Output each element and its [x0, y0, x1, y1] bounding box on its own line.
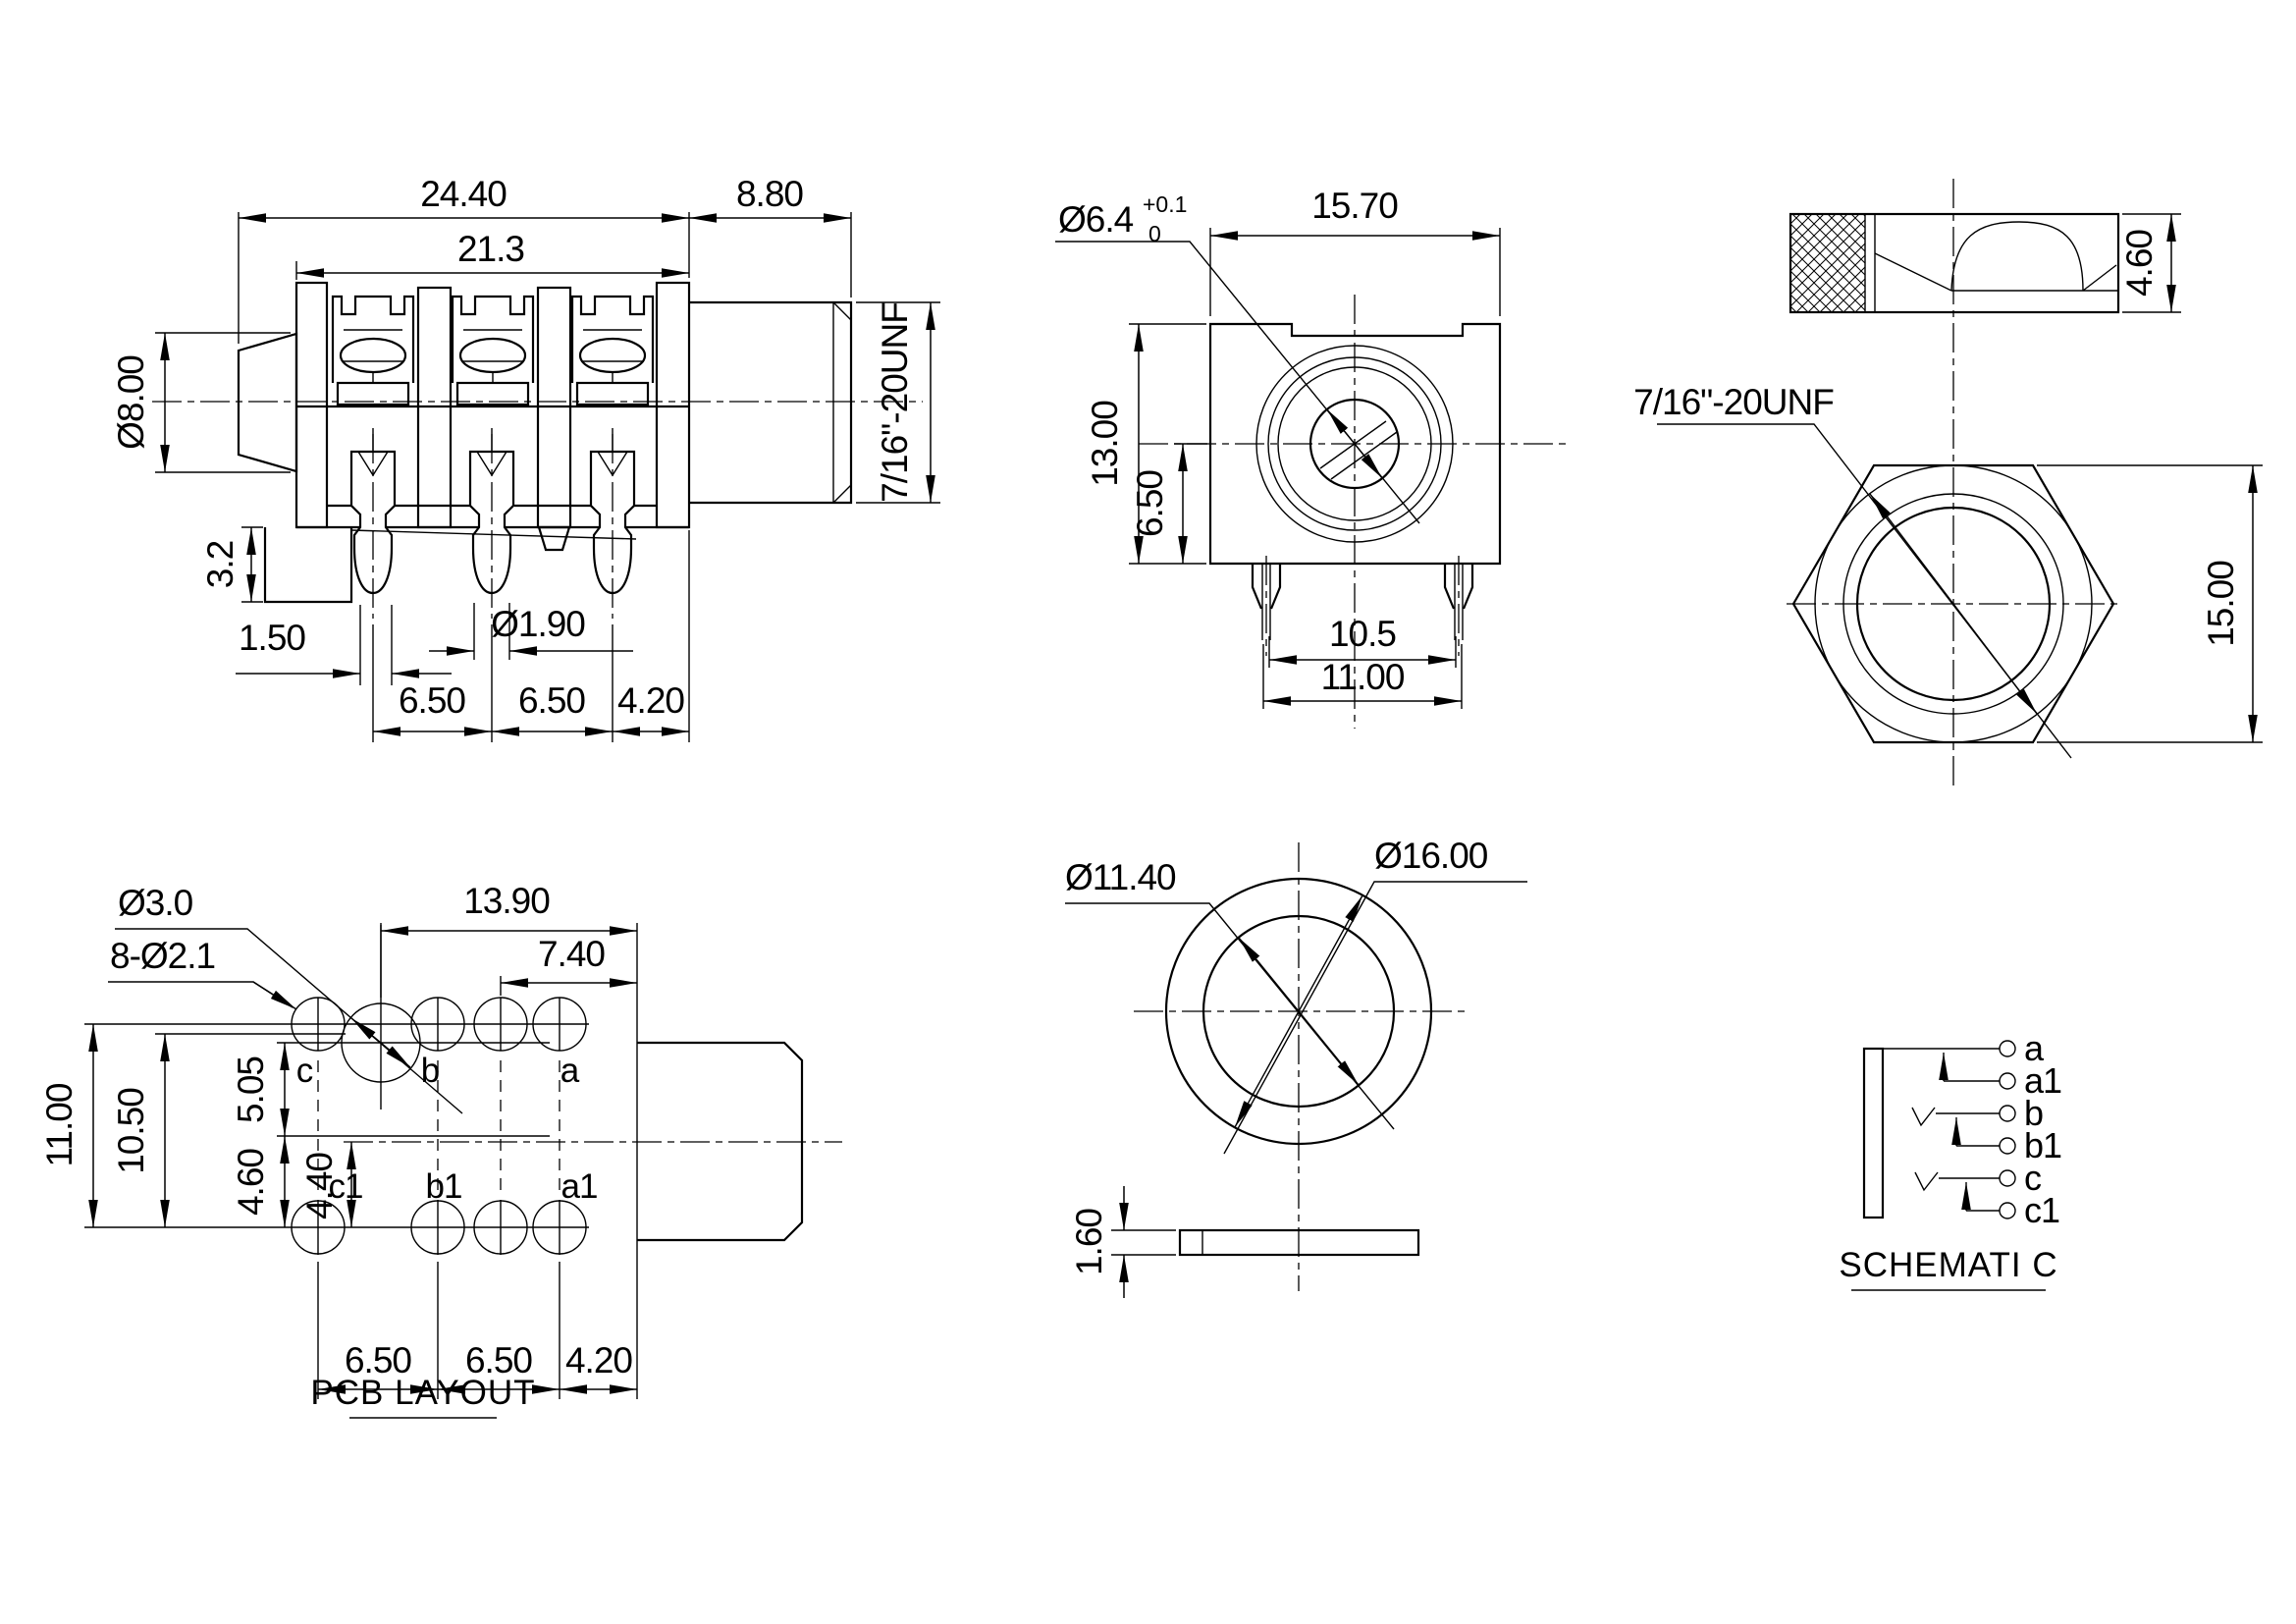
dim-small-holes: 8-Ø2.1	[110, 936, 215, 976]
bottom-step	[265, 527, 351, 602]
dim-washer-outer: Ø16.00	[1374, 836, 1488, 876]
nut-facet-dome	[1951, 222, 2083, 291]
terminal-2	[453, 297, 533, 405]
dim-total-width: 24.40	[420, 174, 507, 214]
terminal-c	[2000, 1170, 2015, 1186]
pad-label-b1: b1	[426, 1167, 462, 1206]
washer-view: Ø11.40 Ø16.00 1.60	[1065, 836, 1527, 1298]
terminal-c1	[2000, 1203, 2015, 1218]
dim-pitch-3: 4.20	[617, 680, 684, 721]
thread-outline	[689, 302, 851, 503]
ext-lines-pcb-top	[381, 923, 501, 998]
solder-pin-3	[591, 428, 634, 619]
dim-peg-span-inner: 10.5	[1329, 614, 1396, 654]
dim-col-span-2: 7.40	[538, 934, 605, 974]
dim-bore-tol-lower: 0	[1148, 221, 1161, 246]
dim-lower-offset-2: 4.40	[299, 1153, 340, 1219]
pad-label-a: a	[561, 1052, 580, 1090]
solder-pin-2	[470, 428, 513, 619]
solder-pin-1	[351, 428, 395, 619]
terminal-a1	[2000, 1073, 2015, 1089]
pcb-title: PCB LAYOUT	[310, 1374, 535, 1412]
pin-label-c1: c1	[2024, 1190, 2059, 1230]
dim-front-width: 15.70	[1311, 186, 1398, 226]
dim-pcb-pitch-3: 4.20	[565, 1340, 632, 1380]
terminal-3	[572, 297, 653, 405]
dim-washer-thickness: 1.60	[1069, 1209, 1109, 1275]
terminal-a	[2000, 1041, 2015, 1056]
front-view: Ø6.4 +0.1 0 15.70 13.00 6.50 10.5 11.00	[1055, 186, 1571, 729]
switch-contact-b	[1912, 1108, 1935, 1125]
dim-thread-spec-nut: 7/16"-20UNF	[1633, 382, 1834, 422]
schematic-title: SCHEMATI C	[1839, 1246, 2057, 1284]
ext-lines-top	[239, 212, 851, 344]
right-flange	[657, 283, 689, 527]
ext-lines-pin-offset	[360, 605, 392, 685]
dim-pin-dia: Ø1.90	[491, 604, 585, 644]
dim-lower-offset-1: 4.60	[231, 1149, 271, 1216]
dim-washer-inner: Ø11.40	[1065, 857, 1176, 897]
pad-label-a1: a1	[561, 1167, 598, 1206]
dim-row-span-2: 10.50	[111, 1088, 151, 1174]
sleeve-bar	[1864, 1049, 1883, 1218]
bore-slot-lines	[1320, 421, 1397, 479]
thread-leader	[1657, 424, 2071, 758]
center-peg	[539, 527, 569, 550]
knurl-hatch	[1790, 214, 1865, 312]
dim-peg-span-outer: 11.00	[1321, 657, 1405, 697]
bushing-outline	[239, 334, 296, 471]
dim-step-height: 3.2	[200, 541, 240, 588]
knurl-boundary	[1865, 214, 1875, 312]
front-peg-2	[1445, 556, 1472, 656]
pad-label-c: c	[296, 1052, 313, 1090]
dim-bore-dia: Ø6.4	[1058, 199, 1134, 240]
switch-contact-c	[1915, 1172, 1938, 1190]
dim-pitch-1: 6.50	[399, 680, 465, 721]
ext-lines-washer-thick	[1111, 1230, 1176, 1255]
dim-row-span-1: 11.00	[39, 1083, 80, 1166]
left-flange	[296, 283, 327, 527]
front-peg-1	[1253, 556, 1280, 656]
dim-col-span-1: 13.90	[463, 881, 550, 921]
pcb-layout-view: c b a c1 b1 a1 Ø3.0 8-Ø2.1 13.90 7.40 11…	[39, 881, 842, 1418]
dim-thread-length: 8.80	[736, 174, 803, 214]
small-holes-leader	[108, 982, 293, 1007]
ext-lines-step	[241, 527, 263, 602]
dim-pitch-2: 6.50	[518, 680, 585, 721]
terminal-1	[333, 297, 413, 405]
dim-front-height: 13.00	[1085, 401, 1125, 487]
jack-connector-drawing: 24.40 8.80 21.3 Ø8.00 3.2 7/16"-20UNF 1.…	[0, 0, 2296, 1624]
washer-outer-leader	[1224, 882, 1527, 1154]
dim-bore-tol-upper: +0.1	[1143, 191, 1187, 217]
dim-nut-thickness: 4.60	[2119, 230, 2160, 297]
dim-pin-offset: 1.50	[239, 618, 305, 658]
thread-chamfer	[833, 302, 851, 503]
dim-upper-offset: 5.05	[231, 1056, 271, 1123]
pad-label-b: b	[421, 1052, 439, 1090]
dim-across-flats: 15.00	[2201, 561, 2241, 647]
dim-center-height: 6.50	[1130, 470, 1170, 537]
dim-thread-spec-side: 7/16"-20UNF	[875, 302, 915, 503]
ext-lines-bushing	[155, 333, 291, 472]
side-view: 24.40 8.80 21.3 Ø8.00 3.2 7/16"-20UNF 1.…	[111, 174, 940, 742]
dim-body-width: 21.3	[457, 229, 524, 269]
dim-bushing-dia: Ø8.00	[111, 355, 151, 450]
dim-big-hole: Ø3.0	[118, 883, 193, 923]
terminal-b1	[2000, 1138, 2015, 1154]
drawing-sheet: 24.40 8.80 21.3 Ø8.00 3.2 7/16"-20UNF 1.…	[0, 0, 2296, 1624]
schematic-view: a a1 b b1 c c1 SCHEMATI C	[1839, 1028, 2061, 1290]
nut-view: 4.60 7/16"-20UNF 15.00	[1633, 179, 2263, 785]
terminal-b	[2000, 1106, 2015, 1121]
